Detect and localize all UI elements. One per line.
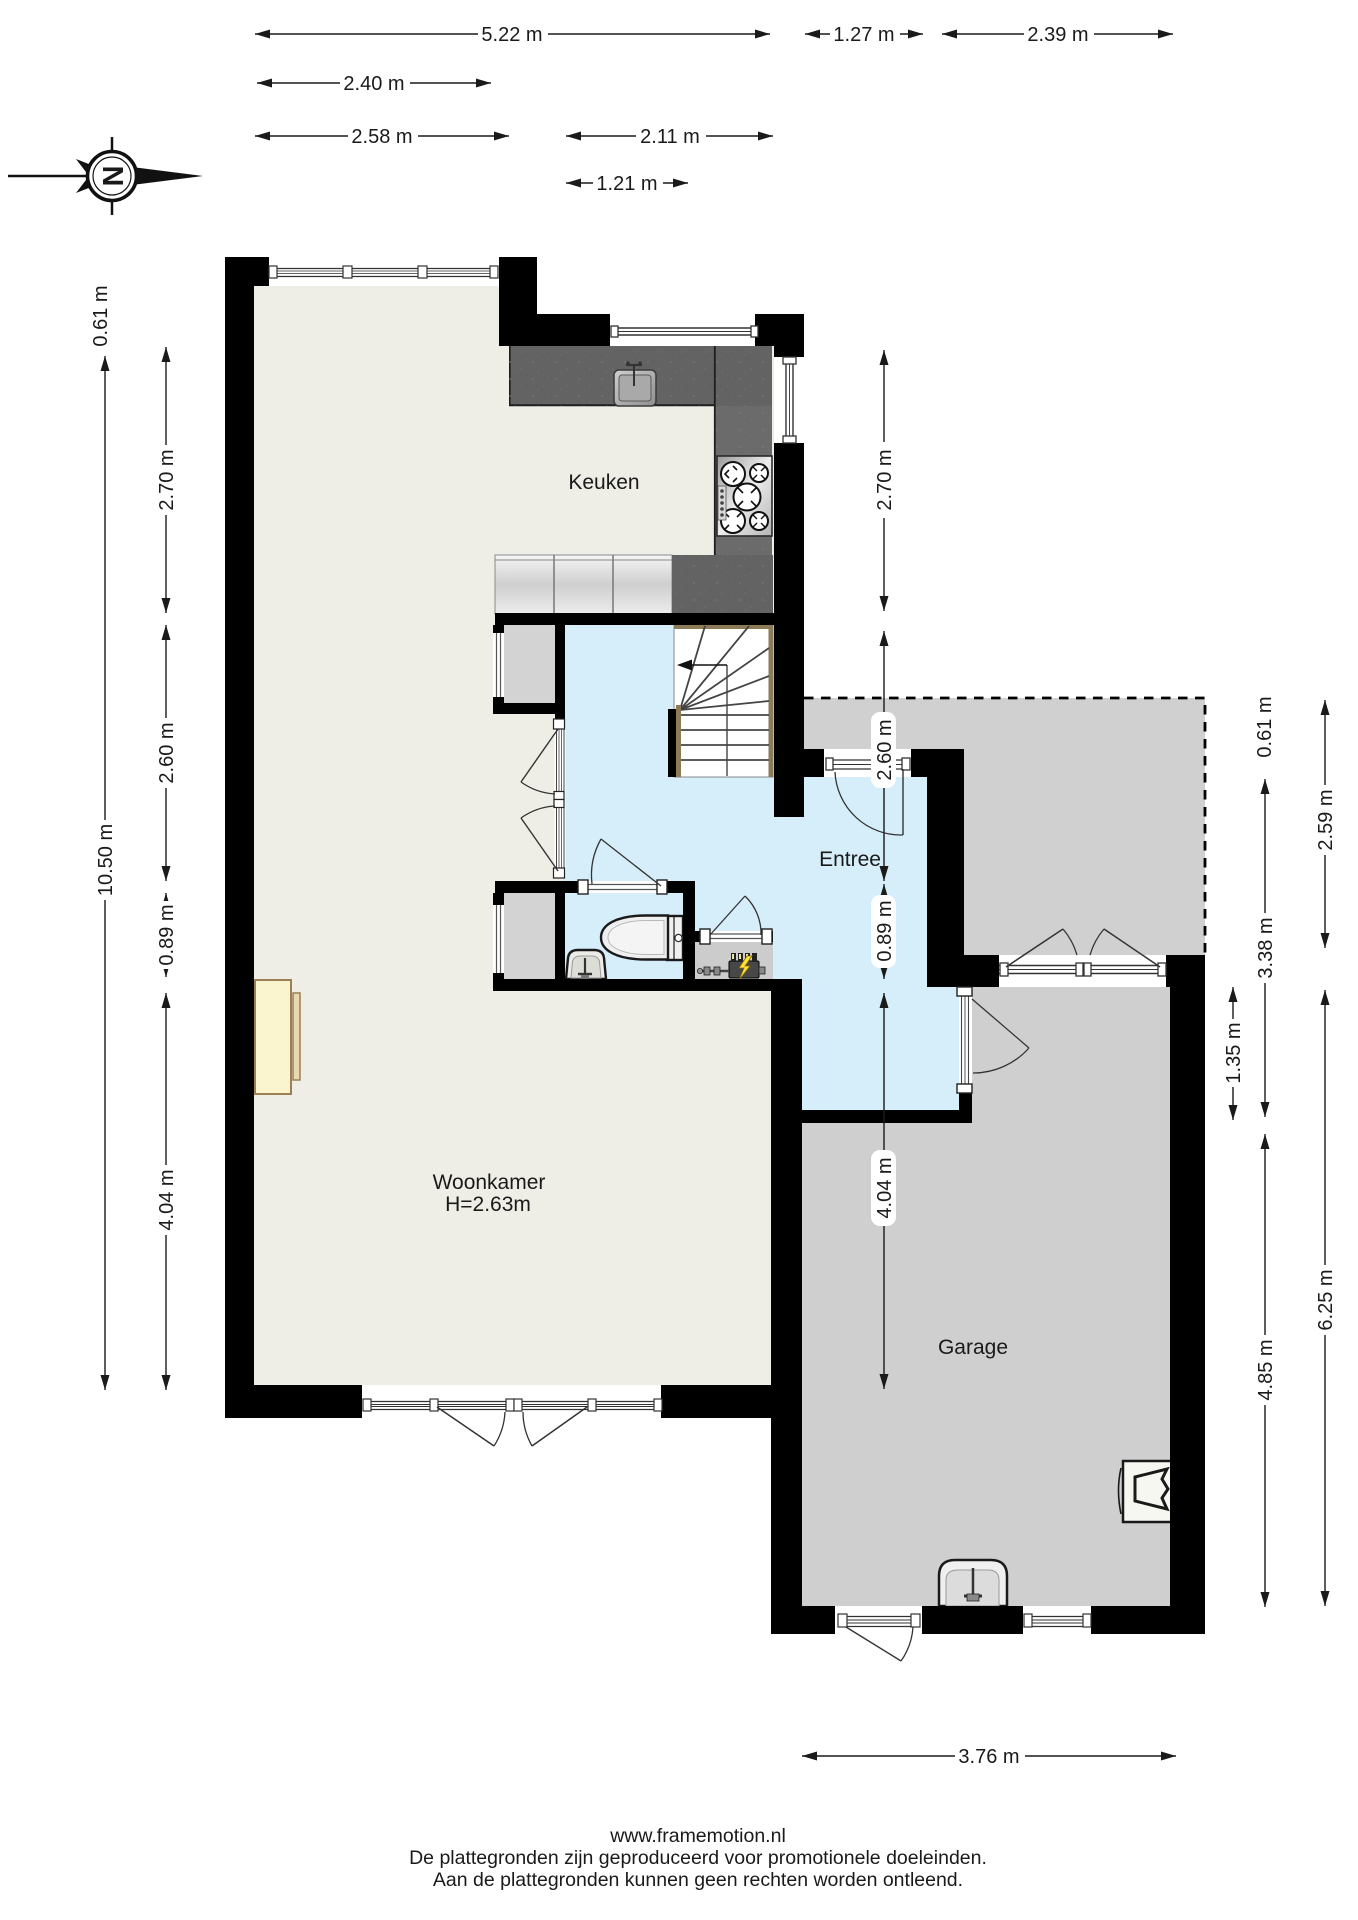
svg-text:2.59 m: 2.59 m (1315, 789, 1337, 850)
svg-text:Keuken: Keuken (568, 471, 639, 494)
svg-text:4.85 m: 4.85 m (1255, 1339, 1277, 1400)
svg-text:4.04 m: 4.04 m (874, 1157, 896, 1218)
svg-text:0.61 m: 0.61 m (1254, 696, 1276, 757)
svg-text:2.70 m: 2.70 m (156, 449, 178, 510)
svg-text:1.35 m: 1.35 m (1223, 1022, 1245, 1083)
svg-text:2.40 m: 2.40 m (343, 73, 404, 95)
svg-text:Garage: Garage (938, 1336, 1008, 1359)
svg-text:4.04 m: 4.04 m (156, 1169, 178, 1230)
svg-text:10.50 m: 10.50 m (95, 824, 117, 896)
svg-text:2.58 m: 2.58 m (351, 126, 412, 148)
svg-text:Entree: Entree (819, 848, 881, 871)
svg-text:0.61 m: 0.61 m (90, 285, 112, 346)
svg-text:2.60 m: 2.60 m (156, 722, 178, 783)
svg-text:De plattegronden zijn geproduc: De plattegronden zijn geproduceerd voor … (409, 1847, 987, 1869)
svg-text:www.framemotion.nl: www.framemotion.nl (609, 1825, 786, 1847)
svg-text:Woonkamer: Woonkamer (433, 1171, 546, 1194)
svg-text:5.22 m: 5.22 m (481, 24, 542, 46)
svg-text:N: N (96, 166, 128, 187)
svg-text:2.11 m: 2.11 m (640, 126, 700, 148)
svg-text:1.27 m: 1.27 m (833, 24, 894, 46)
svg-text:Aan de plattegronden kunnen ge: Aan de plattegronden kunnen geen rechten… (433, 1869, 963, 1891)
svg-text:3.76 m: 3.76 m (958, 1746, 1019, 1768)
svg-text:H=2.63m: H=2.63m (445, 1193, 531, 1216)
svg-text:3.38 m: 3.38 m (1255, 917, 1277, 978)
svg-text:2.39 m: 2.39 m (1027, 24, 1088, 46)
svg-text:2.60 m: 2.60 m (874, 719, 896, 780)
svg-text:0.89 m: 0.89 m (874, 900, 896, 961)
svg-text:2.70 m: 2.70 m (874, 449, 896, 510)
svg-text:6.25 m: 6.25 m (1315, 1269, 1337, 1330)
svg-text:1.21 m: 1.21 m (596, 173, 657, 195)
svg-text:0.89 m: 0.89 m (156, 904, 178, 965)
